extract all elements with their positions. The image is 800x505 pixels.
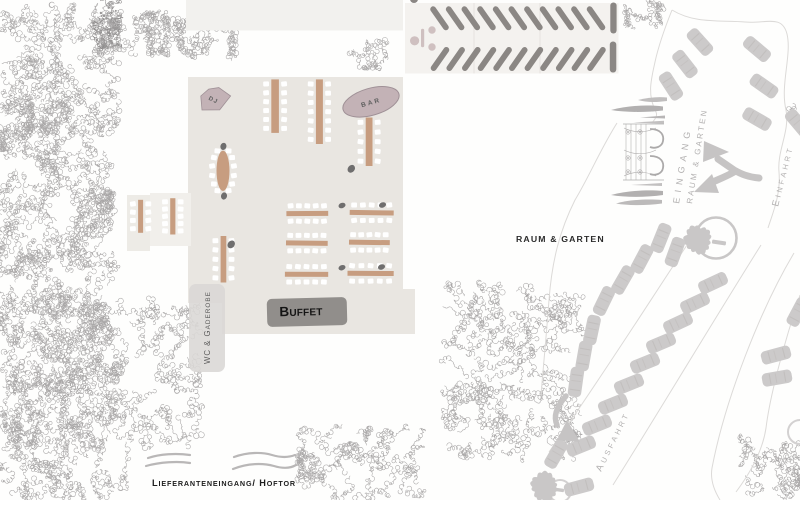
svg-text:RAUM & GARTEN: RAUM & GARTEN <box>516 234 605 244</box>
svg-text:LIEFERANTENEINGANG/ HOFTOR: LIEFERANTENEINGANG/ HOFTOR <box>152 478 296 488</box>
svg-text:WC & GADEROBE: WC & GADEROBE <box>203 291 212 364</box>
